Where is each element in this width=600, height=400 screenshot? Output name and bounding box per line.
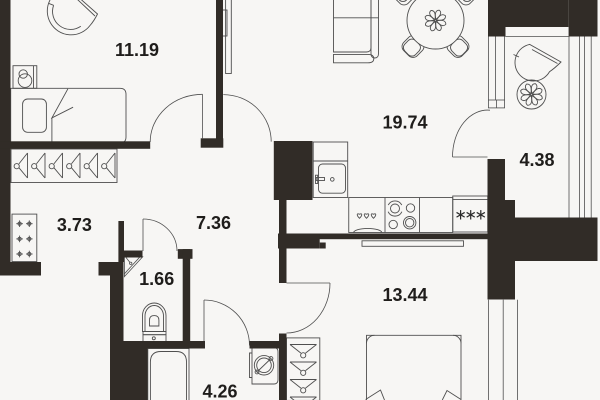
- svg-text:1.66: 1.66: [139, 269, 174, 289]
- svg-text:4.26: 4.26: [202, 381, 237, 400]
- svg-text:13.44: 13.44: [382, 285, 427, 305]
- svg-text:3.73: 3.73: [57, 215, 92, 235]
- svg-text:11.19: 11.19: [115, 40, 159, 60]
- svg-text:7.36: 7.36: [196, 213, 231, 233]
- svg-text:4.38: 4.38: [519, 150, 554, 170]
- svg-text:19.74: 19.74: [382, 113, 427, 133]
